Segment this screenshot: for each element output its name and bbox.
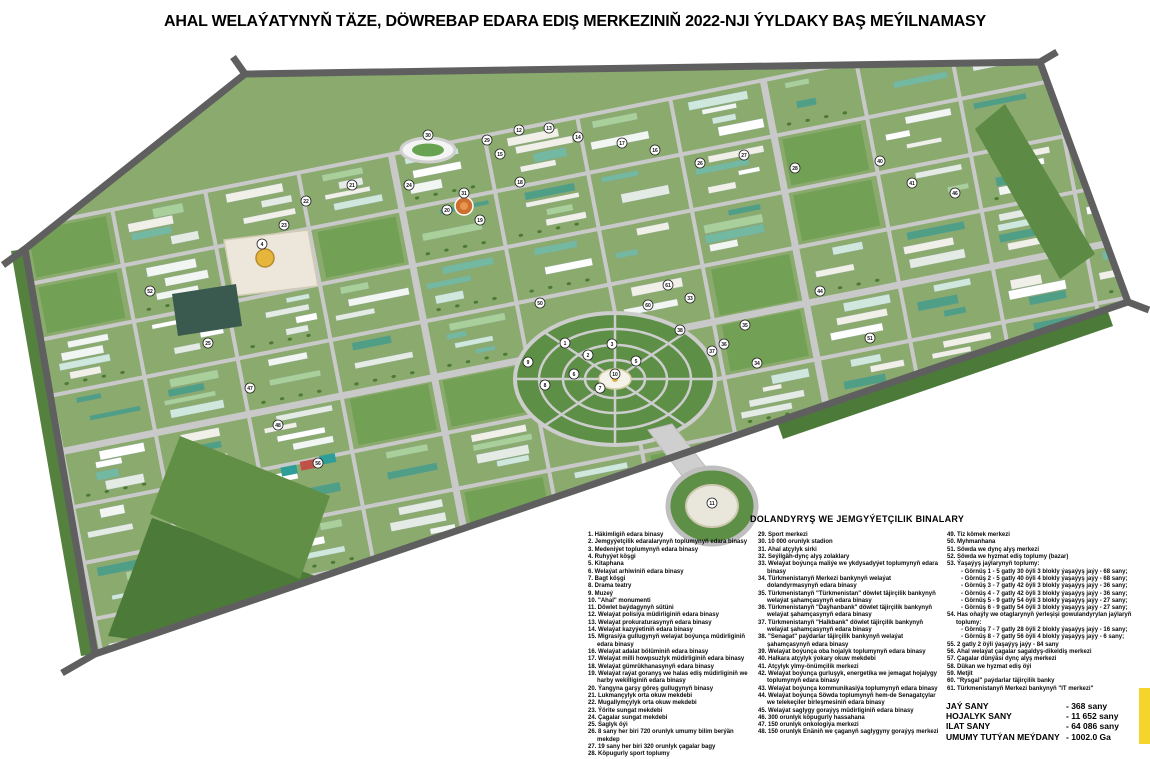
legend-item: 59. Metjit [947,671,1147,678]
legend-item: 53. Ýaşaýyş jaýlarynyň toplumy: [947,561,1147,568]
legend-item: 48. 150 orunlyk Enäniň we çaganyň saglyg… [758,729,944,736]
svg-text:34: 34 [754,361,760,367]
svg-text:23: 23 [281,223,287,229]
stat-row: ILAT SANY- 64 086 sany [946,721,1146,731]
legend-item: 31. Ahal atçylyk sirki [758,547,944,554]
map-marker: 34 [752,358,762,368]
legend-item: 37. Türkmenistanyň "Halkbank" döwlet täj… [758,620,944,635]
map-marker: 23 [279,220,289,230]
map-marker: 12 [514,125,524,135]
svg-text:8: 8 [544,383,547,389]
map-marker: 56 [313,458,323,468]
legend-item: 4. Ruhyýet köşgi [588,554,756,561]
svg-text:20: 20 [444,208,450,214]
map-marker: 30 [423,130,433,140]
legend-item: 51. Söwda we dynç alyş merkezi [947,547,1147,554]
legend-item: 38. "Senagat" paýdarlar täjirçilik banky… [758,634,944,649]
svg-text:27: 27 [741,153,747,159]
svg-text:41: 41 [909,181,915,187]
svg-text:47: 47 [247,386,253,392]
svg-text:37: 37 [709,349,715,355]
legend-item: 58. Dükan we hyzmat ediş öýi [947,664,1147,671]
svg-text:61: 61 [665,283,671,289]
legend-item: 49. Tiz kömek merkezi [947,532,1147,539]
stat-label: JAÝ SANY [946,701,1066,711]
map-marker: 46 [950,188,960,198]
legend-item: 36. Türkmenistanyň "Daýhanbank" döwlet t… [758,605,944,620]
map-marker: 50 [535,298,545,308]
stat-value: - 368 sany [1066,701,1146,711]
svg-text:5: 5 [635,359,638,365]
legend-item: 43. Welaýat boýunça kommunikasiýa toplum… [758,686,944,693]
stat-label: HOJALYK SANY [946,711,1066,721]
legend-item: 21. Lukmançylyk orta okuw mekdebi [588,693,756,700]
svg-text:50: 50 [537,301,543,307]
legend-item: 8. Drama teatry [588,583,756,590]
map-marker: 41 [907,178,917,188]
map-marker: 24 [404,180,414,190]
map-marker: 11 [707,498,717,508]
legend-item: - Görnüş 8 - 7 gatly 56 öýli 4 blokly ýa… [947,634,1147,641]
legend-item: 32. Seýilgäh-dynç alyş zolaklary [758,554,944,561]
legend-item: 55. 2 gatly 2 öýli ýaşaýyş jaýy - 84 san… [947,642,1147,649]
map-marker: 37 [707,346,717,356]
legend-item: 57. Çagalar dünýäsi dynç alyş merkezi [947,656,1147,663]
legend-item: - Görnüş 6 - 9 gatly 54 öýli 3 blokly ýa… [947,605,1147,612]
svg-text:30: 30 [425,133,431,139]
svg-text:38: 38 [677,328,683,334]
legend-item: 35. Türkmenistanyň "Türkmenistan" döwlet… [758,591,944,606]
map-marker: 6 [569,369,579,379]
map-marker: 18 [515,177,525,187]
legend-item: 13. Welaýat prokuraturasynyň edara binas… [588,620,756,627]
svg-text:26: 26 [697,161,703,167]
map-marker: 14 [573,132,583,142]
legend-item: 61. Türkmenistanyň Merkezi bankynyň "IT … [947,686,1147,693]
svg-text:52: 52 [147,289,153,295]
legend-item: 44. Welaýat boýunça Söwda toplumynyň hem… [758,693,944,708]
svg-text:16: 16 [652,148,658,154]
map-marker: 44 [815,286,825,296]
legend-item: 22. Mugallymçylyk orta okuw mekdebi [588,700,756,707]
map-marker: 10 [610,369,620,379]
map-marker: 17 [617,138,627,148]
summary-stats: JAÝ SANY- 368 sanyHOJALYK SANY- 11 652 s… [946,701,1146,742]
svg-text:25: 25 [205,341,211,347]
stat-row: UMUMY TUTÝAN MEÝDANY- 1002.0 Ga [946,732,1146,742]
svg-text:40: 40 [877,159,883,165]
legend-item: 18. Welaýat gümrükhanasynyň edara binasy [588,664,756,671]
legend-item: 50. Myhmanhana [947,539,1147,546]
map-marker: 35 [740,320,750,330]
svg-text:35: 35 [742,323,748,329]
map-marker: 51 [865,333,875,343]
map-marker: 4 [257,239,267,249]
svg-text:22: 22 [303,199,309,205]
svg-text:1: 1 [564,341,567,347]
legend-item: 46. 300 orunlyk köpugurly hassahana [758,715,944,722]
svg-text:56: 56 [315,461,321,467]
legend-item: 56. Ahal welaýat çagalar sagaldyş-dikeld… [947,649,1147,656]
map-marker: 8 [540,380,550,390]
legend-item: 28. Köpugurly sport toplumy [588,751,756,758]
svg-text:14: 14 [575,135,581,141]
svg-text:60: 60 [645,303,651,309]
svg-text:48: 48 [275,423,281,429]
masterplan-poster: { "title": "AHAL WELAÝATYNYŇ TÄZE, DÖWRE… [0,0,1150,744]
legend-item: 6. Welaýat arhiwiniň edara binasy [588,569,756,576]
map-marker: 28 [790,163,800,173]
legend-item: 40. Halkara atçylyk ýokary okuw mekdebi [758,656,944,663]
legend-item: 26. 8 sany her biri 720 orunlyk umumy bi… [588,729,756,744]
svg-text:17: 17 [619,141,625,147]
yellow-accent-bar [1139,688,1150,744]
legend-item: 39. Welaýat boýunça oba hojalyk toplumyn… [758,649,944,656]
legend-item: 25. Saglyk öýi [588,722,756,729]
circus-building [455,197,473,215]
legend-title: DOLANDYRYŞ WE JEMGYÝETÇILIK BINALARY [750,514,970,524]
legend-item: 30. 10 000 orunlyk stadion [758,539,944,546]
legend-item: - Görnüş 2 - 5 gatly 40 öýli 4 blokly ýa… [947,576,1147,583]
map-marker: 40 [875,156,885,166]
map-marker: 26 [695,158,705,168]
svg-text:2: 2 [587,353,590,359]
stat-label: ILAT SANY [946,721,1066,731]
map-marker: 5 [631,356,641,366]
legend-item: - Görnüş 1 - 5 gatly 30 öýli 3 blokly ýa… [947,569,1147,576]
legend-item: 27. 19 sany her biri 320 orunlyk çagalar… [588,744,756,751]
legend-item: 7. Bagt köşgi [588,576,756,583]
svg-text:46: 46 [952,191,958,197]
legend-item: 17. Welaýat milli howpsuzlyk müdirligini… [588,656,756,663]
legend-item: 16. Welaýat adalat bölüminiň edara binas… [588,649,756,656]
map-marker: 48 [273,420,283,430]
map-marker: 25 [203,338,213,348]
svg-text:28: 28 [792,166,798,172]
svg-text:36: 36 [721,342,727,348]
legend-item: 33. Welaýat boýunça maliýe we ykdysadyýe… [758,561,944,576]
map-marker: 29 [482,135,492,145]
map-marker: 31 [459,188,469,198]
stat-label: UMUMY TUTÝAN MEÝDANY [946,732,1066,742]
svg-text:3: 3 [611,342,614,348]
legend-item: 2. Jemgyýetçilik edaralarynyň toplumynyň… [588,539,756,546]
map-marker: 9 [523,357,533,367]
svg-text:9: 9 [527,360,530,366]
map-marker: 33 [685,293,695,303]
page-title: AHAL WELAÝATYNYŇ TÄZE, DÖWREBAP EDARA ED… [0,13,1150,31]
legend-item: 3. Medeniýet toplumynyň edara binasy [588,547,756,554]
legend-item: 45. Welaýat saglygy goraýyş müdirliginiň… [758,708,944,715]
svg-text:6: 6 [573,372,576,378]
legend-item: 9. Muzeý [588,591,756,598]
svg-text:33: 33 [687,296,693,302]
map-marker: 52 [145,286,155,296]
legend-item: 19. Welaýat raýat goranyş we halas ediş … [588,671,756,686]
legend-item: 11. Döwlet baýdagynyň sütüni [588,605,756,612]
stat-row: JAÝ SANY- 368 sany [946,701,1146,711]
map-marker: 15 [495,149,505,159]
legend-item: - Görnüş 7 - 7 gatly 28 öýli 2 blokly ýa… [947,627,1147,634]
legend-column-2: 29. Sport merkezi30. 10 000 orunlyk stad… [758,532,944,737]
svg-text:18: 18 [517,180,523,186]
stat-value: - 11 652 sany [1066,711,1146,721]
stat-row: HOJALYK SANY- 11 652 sany [946,711,1146,721]
legend-item: 1. Häkimligiň edara binasy [588,532,756,539]
map-marker: 20 [442,205,452,215]
map-marker: 60 [643,300,653,310]
legend-column-1: 1. Häkimligiň edara binasy2. Jemgyýetçil… [588,532,756,759]
svg-text:24: 24 [406,183,412,189]
svg-text:13: 13 [546,126,552,132]
map-marker: 27 [739,150,749,160]
legend-item: 5. Kitaphana [588,561,756,568]
legend-item: 14. Welaýat kazyýetiniň edara binasy [588,627,756,634]
svg-text:12: 12 [516,128,522,134]
legend-item: 29. Sport merkezi [758,532,944,539]
legend-item: 12. Welaýat polisiýa müdirliginiň edara … [588,612,756,619]
legend-item: - Görnüş 3 - 7 gatly 42 öýli 3 blokly ýa… [947,583,1147,590]
map-marker: 16 [650,145,660,155]
legend-item: 10. "Ahal" monumenti [588,598,756,605]
svg-text:7: 7 [599,386,602,392]
legend-item: 42. Welaýat boýunça gurluşyk, energetika… [758,671,944,686]
stat-value: - 1002.0 Ga [1066,732,1146,742]
map-marker: 13 [544,123,554,133]
svg-text:51: 51 [867,336,873,342]
map-marker: 19 [475,215,485,225]
legend-item: 24. Çagalar sungat mekdebi [588,715,756,722]
svg-text:44: 44 [817,289,823,295]
svg-text:19: 19 [477,218,483,224]
map-marker: 61 [663,280,673,290]
legend-item: 23. Ýörite sungat mekdebi [588,708,756,715]
map-marker: 7 [595,383,605,393]
map-marker: 21 [347,180,357,190]
svg-text:31: 31 [461,191,467,197]
legend-item: - Görnüş 4 - 7 gatly 42 öýli 3 blokly ýa… [947,591,1147,598]
stadium [401,138,455,162]
svg-text:10: 10 [612,372,618,378]
legend-item: - Görnüş 5 - 9 gatly 54 öýli 3 blokly ýa… [947,598,1147,605]
map-marker: 47 [245,383,255,393]
map-marker: 1 [560,338,570,348]
map-marker: 36 [719,339,729,349]
map-marker: 3 [607,339,617,349]
legend-item: 20. Ýangyna garşy göreş gullugynyň binas… [588,686,756,693]
legend-item: 47. 150 orunlyk onkologiýa merkezi [758,722,944,729]
map-marker: 2 [583,350,593,360]
golden-dome-icon [256,249,274,267]
map-marker: 38 [675,325,685,335]
svg-text:29: 29 [484,138,490,144]
map-marker: 22 [301,196,311,206]
svg-text:15: 15 [497,152,503,158]
legend-item: 60. "Rysgal" paýdarlar täjirçilik banky [947,678,1147,685]
legend-item: 41. Atçylyk ylmy-önümçilik merkezi [758,664,944,671]
legend-column-3: 49. Tiz kömek merkezi50. Myhmanhana51. S… [947,532,1147,693]
svg-text:21: 21 [349,183,355,189]
svg-text:4: 4 [261,242,264,248]
svg-text:11: 11 [709,501,715,507]
legend-item: 54. Has oňaýly we otaglarynyň ýerleşişi … [947,612,1147,627]
legend-item: 15. Migrasiýa gullugynyň welaýat boýunça… [588,634,756,649]
stat-value: - 64 086 sany [1066,721,1146,731]
legend-item: 34. Türkmenistanyň Merkezi bankynyň wela… [758,576,944,591]
